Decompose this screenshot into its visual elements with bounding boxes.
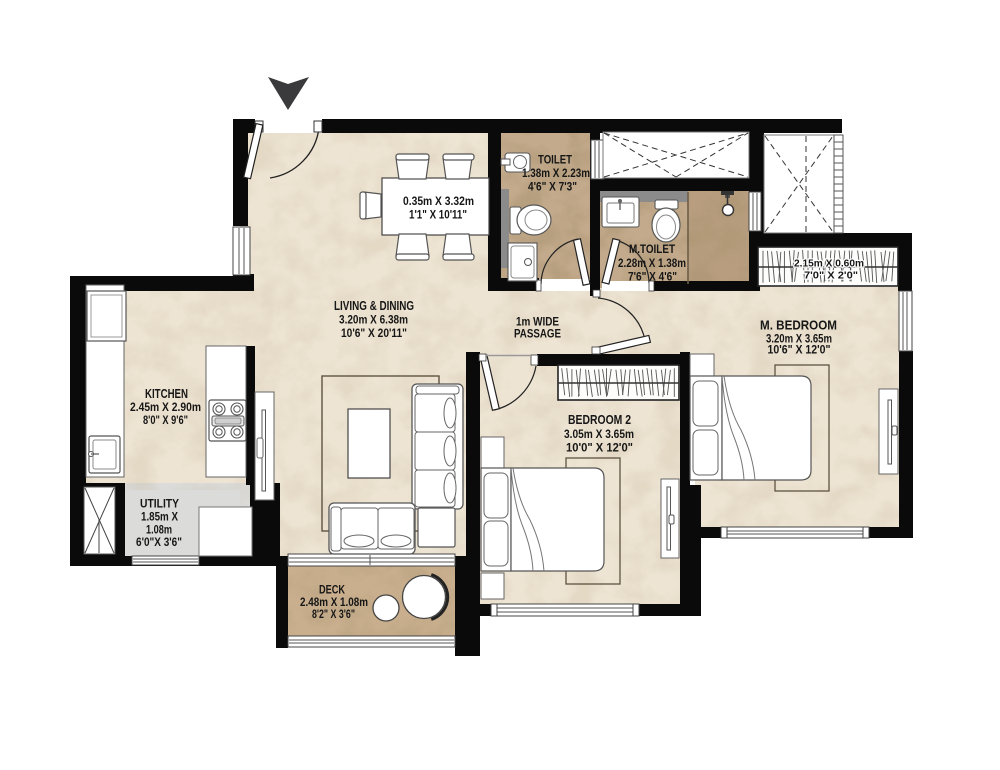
svg-text:M.TOILET: M.TOILET (629, 242, 676, 256)
svg-text:TOILET: TOILET (538, 153, 573, 167)
svg-text:1.38m X 2.23m: 1.38m X 2.23m (522, 166, 590, 180)
svg-text:4'6" X 7'3": 4'6" X 7'3" (528, 180, 577, 194)
svg-text:10'6" X 20'11": 10'6" X 20'11" (341, 326, 407, 340)
svg-text:3.20m X 6.38m: 3.20m X 6.38m (339, 313, 408, 327)
svg-text:3.05m X 3.65m: 3.05m X 3.65m (564, 427, 634, 441)
svg-text:8'0" X 9'6": 8'0" X 9'6" (143, 413, 188, 427)
svg-text:2.45m X 2.90m: 2.45m X 2.90m (130, 400, 201, 414)
svg-text:1'1" X 10'11": 1'1" X 10'11" (409, 208, 467, 222)
svg-text:2.15m X 0.60m: 2.15m X 0.60m (794, 258, 864, 270)
svg-text:PASSAGE: PASSAGE (514, 327, 561, 341)
svg-text:8'2" X 3'6": 8'2" X 3'6" (312, 607, 355, 621)
svg-text:1.85m X: 1.85m X (141, 510, 178, 524)
svg-text:7'6" X 4'6": 7'6" X 4'6" (628, 270, 677, 284)
svg-text:10'0" X 12'0": 10'0" X 12'0" (566, 441, 633, 455)
svg-text:BEDROOM 2: BEDROOM 2 (568, 413, 631, 427)
svg-text:0.35m X 3.32m: 0.35m X 3.32m (403, 194, 474, 208)
svg-text:UTILITY: UTILITY (140, 497, 179, 511)
svg-text:KITCHEN: KITCHEN (145, 387, 188, 401)
svg-text:6'0"X 3'6": 6'0"X 3'6" (136, 535, 182, 549)
svg-text:7'0" X 2'0": 7'0" X 2'0" (804, 270, 858, 282)
svg-text:M. BEDROOM: M. BEDROOM (760, 319, 837, 333)
svg-text:2.28m X 1.38m: 2.28m X 1.38m (618, 256, 686, 270)
svg-text:10'6" X 12'0": 10'6" X 12'0" (768, 343, 831, 357)
svg-text:LIVING & DINING: LIVING & DINING (334, 299, 414, 313)
